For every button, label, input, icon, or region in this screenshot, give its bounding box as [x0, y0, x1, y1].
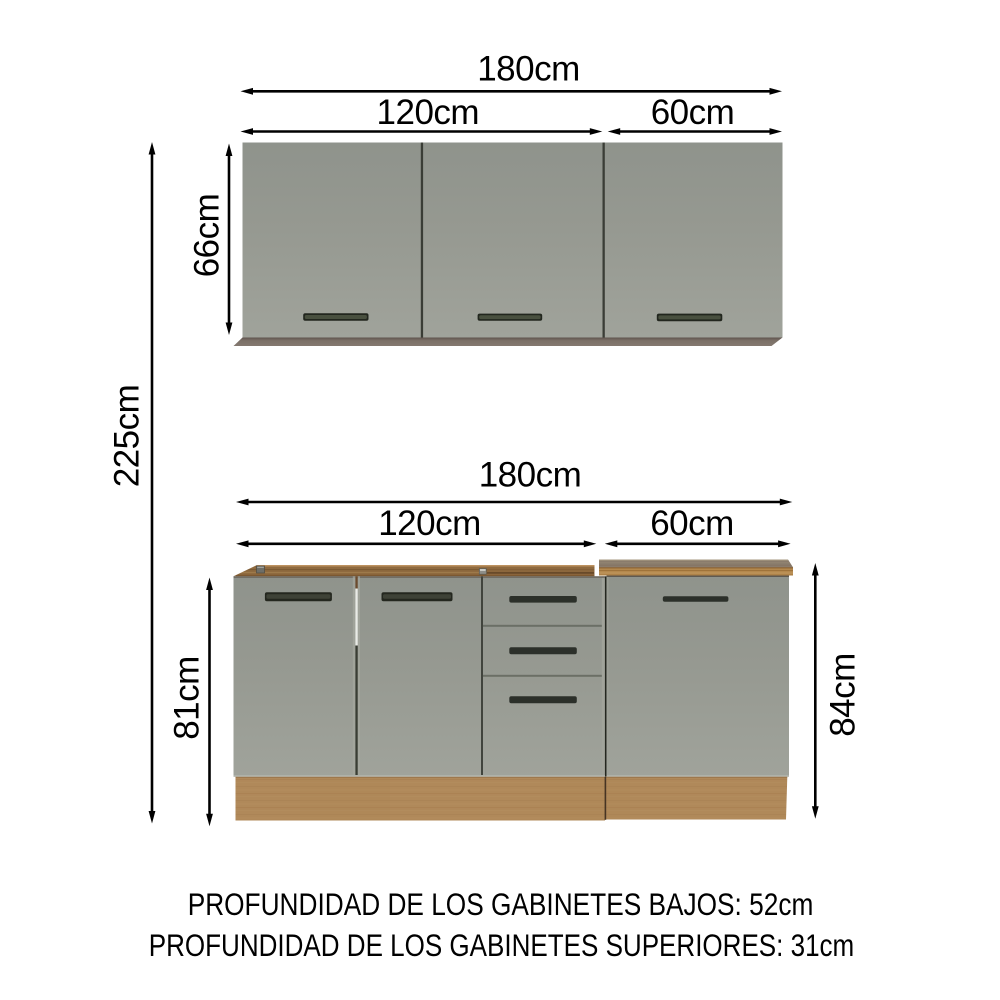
svg-text:81cm: 81cm [167, 656, 206, 740]
svg-text:66cm: 66cm [187, 194, 226, 278]
svg-text:120cm: 120cm [378, 504, 481, 543]
svg-text:225cm: 225cm [107, 385, 146, 488]
svg-text:PROFUNDIDAD DE LOS GABINETES S: PROFUNDIDAD DE LOS GABINETES SUPERIORES:… [149, 929, 854, 964]
svg-text:120cm: 120cm [377, 93, 480, 132]
svg-text:PROFUNDIDAD DE LOS GABINETES B: PROFUNDIDAD DE LOS GABINETES BAJOS: 52cm [188, 888, 814, 923]
svg-text:60cm: 60cm [651, 93, 735, 132]
svg-text:180cm: 180cm [479, 456, 582, 495]
svg-text:84cm: 84cm [823, 653, 862, 737]
svg-text:60cm: 60cm [650, 504, 734, 543]
svg-text:180cm: 180cm [477, 49, 580, 88]
